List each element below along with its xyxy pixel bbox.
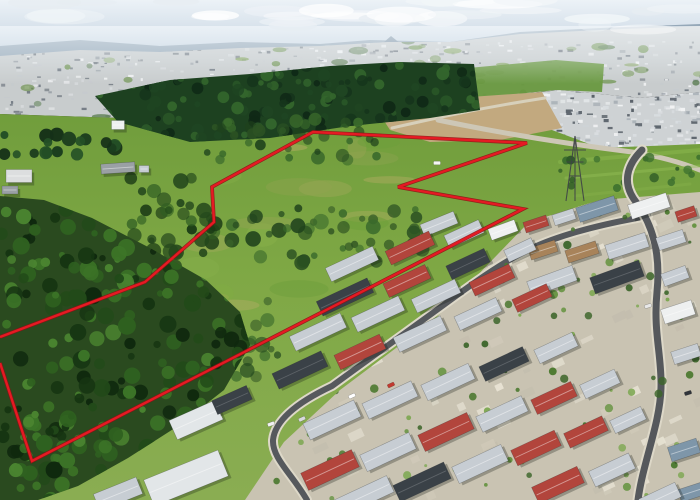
aerial-photo <box>0 0 700 500</box>
house-roof <box>101 162 138 177</box>
house-roof <box>112 121 127 133</box>
house-roof <box>2 186 20 197</box>
house-roof <box>6 170 34 186</box>
car <box>434 161 441 165</box>
aerial-photo-svg <box>0 0 700 500</box>
